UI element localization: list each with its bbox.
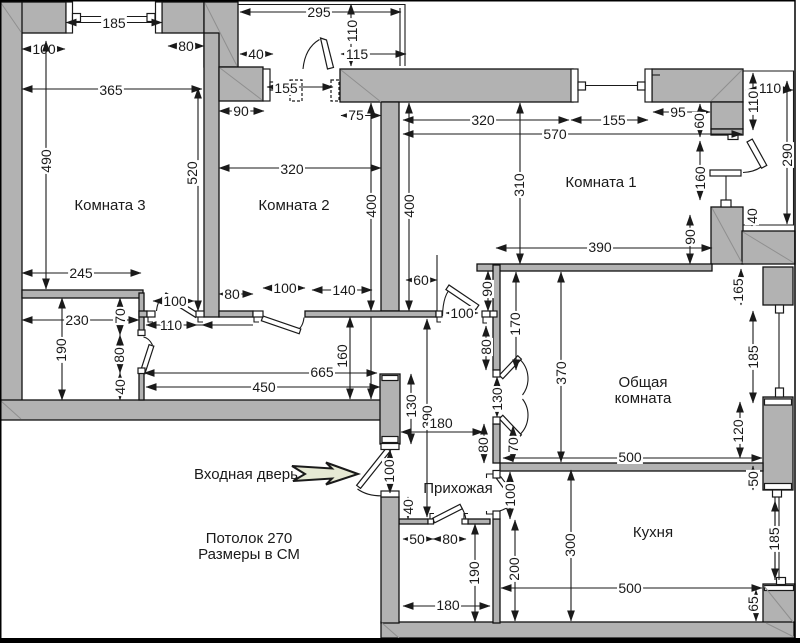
svg-text:400: 400 xyxy=(363,194,379,218)
svg-text:570: 570 xyxy=(543,126,567,142)
svg-text:90: 90 xyxy=(479,281,495,297)
svg-text:500: 500 xyxy=(618,580,642,596)
svg-text:60: 60 xyxy=(413,272,429,288)
svg-text:65: 65 xyxy=(745,596,761,612)
svg-text:170: 170 xyxy=(507,312,523,336)
svg-text:95: 95 xyxy=(670,104,686,120)
svg-text:80: 80 xyxy=(178,38,194,54)
svg-text:100: 100 xyxy=(381,459,397,483)
svg-text:Комната 1: Комната 1 xyxy=(565,174,636,191)
svg-text:60: 60 xyxy=(691,113,707,129)
svg-text:Общая: Общая xyxy=(618,374,667,391)
svg-text:230: 230 xyxy=(65,312,89,328)
svg-text:50: 50 xyxy=(745,471,761,487)
svg-text:190: 190 xyxy=(53,338,69,362)
svg-text:Размеры в СМ: Размеры в СМ xyxy=(198,546,300,563)
svg-text:120: 120 xyxy=(730,419,746,443)
svg-text:Комната 3: Комната 3 xyxy=(74,197,145,214)
svg-text:Прихожая: Прихожая xyxy=(423,480,493,497)
svg-text:70: 70 xyxy=(112,308,128,324)
svg-text:40: 40 xyxy=(400,499,416,515)
svg-text:320: 320 xyxy=(280,161,304,177)
svg-text:390: 390 xyxy=(588,239,612,255)
svg-text:130: 130 xyxy=(403,394,419,418)
svg-text:90: 90 xyxy=(233,103,249,119)
svg-text:40: 40 xyxy=(744,208,760,224)
svg-text:100: 100 xyxy=(502,483,518,507)
svg-text:70: 70 xyxy=(505,437,521,453)
svg-text:100: 100 xyxy=(32,41,56,57)
svg-text:110: 110 xyxy=(160,317,183,333)
svg-text:80: 80 xyxy=(475,437,491,453)
svg-text:Кухня: Кухня xyxy=(633,524,673,541)
svg-text:370: 370 xyxy=(553,361,569,385)
svg-text:160: 160 xyxy=(692,166,708,190)
svg-text:300: 300 xyxy=(562,533,578,557)
svg-text:80: 80 xyxy=(111,347,127,363)
svg-text:160: 160 xyxy=(334,344,350,368)
svg-text:290: 290 xyxy=(779,143,795,167)
svg-text:110: 110 xyxy=(759,80,782,96)
svg-text:155: 155 xyxy=(602,112,626,128)
svg-text:100: 100 xyxy=(273,280,297,296)
svg-text:Комната 2: Комната 2 xyxy=(258,197,329,214)
svg-text:115: 115 xyxy=(346,46,369,62)
svg-text:500: 500 xyxy=(618,449,642,465)
svg-text:665: 665 xyxy=(310,364,334,380)
svg-text:190: 190 xyxy=(466,561,482,585)
svg-text:140: 140 xyxy=(332,282,356,298)
svg-text:180: 180 xyxy=(436,597,460,613)
svg-text:180: 180 xyxy=(429,415,453,431)
svg-text:75: 75 xyxy=(348,107,364,123)
svg-text:40: 40 xyxy=(248,46,264,62)
svg-text:100: 100 xyxy=(450,305,474,321)
svg-text:Потолок 270: Потолок 270 xyxy=(206,530,293,547)
svg-text:155: 155 xyxy=(274,80,298,96)
svg-text:245: 245 xyxy=(69,265,93,281)
svg-text:130: 130 xyxy=(489,387,505,411)
svg-text:320: 320 xyxy=(471,112,495,128)
svg-text:110: 110 xyxy=(745,91,761,114)
svg-text:50: 50 xyxy=(409,531,425,547)
svg-text:490: 490 xyxy=(38,149,54,173)
svg-text:365: 365 xyxy=(99,82,123,98)
svg-text:185: 185 xyxy=(766,527,782,551)
svg-text:295: 295 xyxy=(307,4,331,20)
svg-text:185: 185 xyxy=(102,15,126,31)
svg-text:165: 165 xyxy=(730,278,746,302)
svg-text:110: 110 xyxy=(344,20,360,43)
svg-text:200: 200 xyxy=(506,557,522,581)
svg-text:450: 450 xyxy=(252,379,276,395)
svg-text:400: 400 xyxy=(401,194,417,218)
svg-text:80: 80 xyxy=(478,339,494,355)
svg-text:520: 520 xyxy=(184,161,200,185)
svg-text:100: 100 xyxy=(163,293,187,309)
svg-text:80: 80 xyxy=(224,286,240,302)
svg-text:80: 80 xyxy=(442,531,458,547)
svg-text:90: 90 xyxy=(682,229,698,245)
svg-text:комната: комната xyxy=(615,390,672,407)
svg-text:Входная дверь: Входная дверь xyxy=(194,466,298,483)
svg-text:40: 40 xyxy=(112,379,128,395)
svg-text:185: 185 xyxy=(745,345,761,369)
svg-text:310: 310 xyxy=(511,173,527,197)
